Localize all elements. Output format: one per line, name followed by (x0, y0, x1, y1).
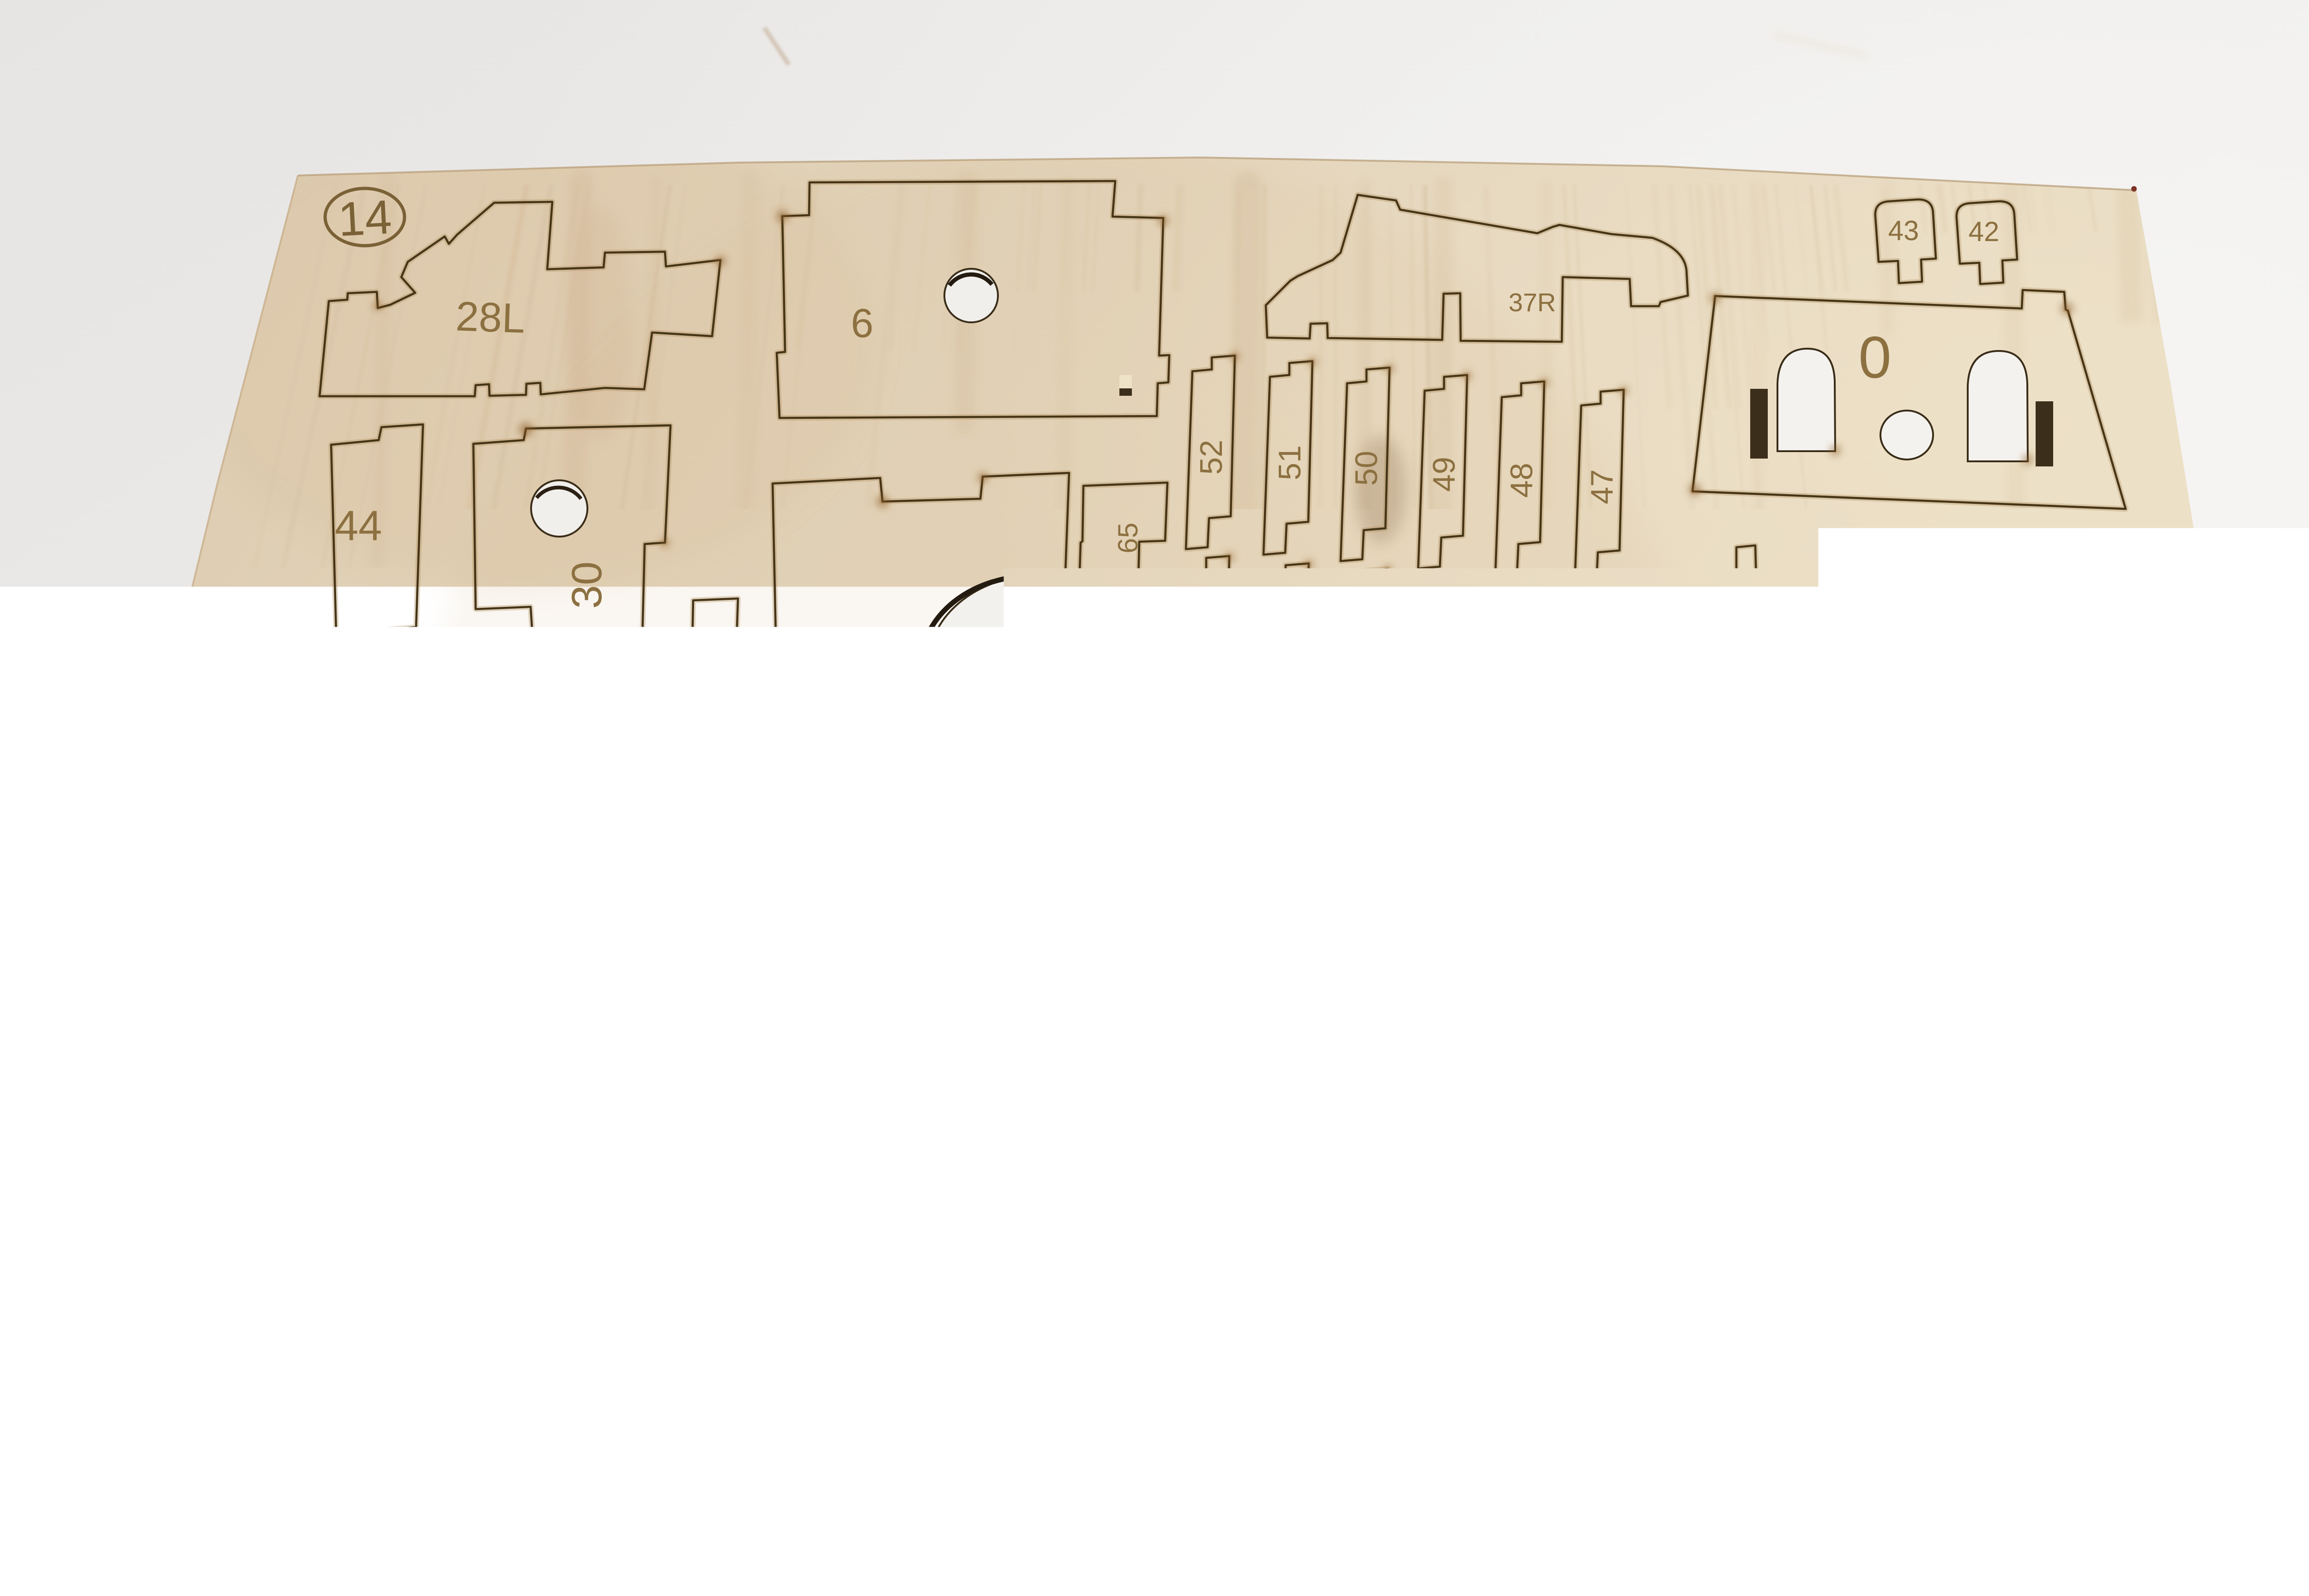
svg-text:43: 43 (1888, 215, 1919, 246)
svg-text:14: 14 (337, 190, 393, 247)
svg-text:64: 64 (799, 743, 863, 807)
svg-text:47: 47 (1584, 469, 1620, 504)
svg-text:0: 0 (1858, 325, 1891, 391)
svg-text:41L: 41L (908, 1252, 1032, 1335)
svg-text:50: 50 (1349, 451, 1384, 486)
svg-text:37R: 37R (1509, 288, 1556, 317)
svg-text:47: 47 (1593, 674, 1628, 709)
svg-text:29: 29 (411, 659, 458, 706)
svg-text:51: 51 (1272, 445, 1307, 480)
svg-text:1: 1 (1724, 700, 1765, 782)
svg-text:50: 50 (1346, 658, 1381, 693)
svg-text:51: 51 (1268, 653, 1303, 688)
svg-text:40: 40 (290, 1187, 395, 1293)
svg-text:52: 52 (1189, 647, 1224, 683)
svg-text:37L: 37L (466, 896, 514, 928)
svg-text:48: 48 (1503, 667, 1538, 702)
svg-text:6: 6 (851, 300, 874, 346)
svg-text:52: 52 (1194, 440, 1229, 475)
svg-text:49: 49 (1425, 662, 1460, 697)
svg-text:48: 48 (1504, 463, 1539, 498)
svg-text:42: 42 (1969, 216, 2000, 247)
svg-text:49: 49 (1427, 457, 1462, 492)
svg-text:65: 65 (687, 648, 718, 679)
svg-text:45: 45 (363, 1034, 405, 1076)
svg-text:54: 54 (1607, 1156, 1646, 1195)
svg-text:41R: 41R (704, 1232, 840, 1314)
svg-text:28R: 28R (950, 985, 1077, 1063)
svg-text:65: 65 (1112, 523, 1143, 554)
svg-text:44: 44 (335, 502, 382, 550)
svg-text:30: 30 (563, 562, 610, 609)
svg-text:53: 53 (1360, 1156, 1399, 1195)
svg-text:28L: 28L (455, 293, 526, 342)
